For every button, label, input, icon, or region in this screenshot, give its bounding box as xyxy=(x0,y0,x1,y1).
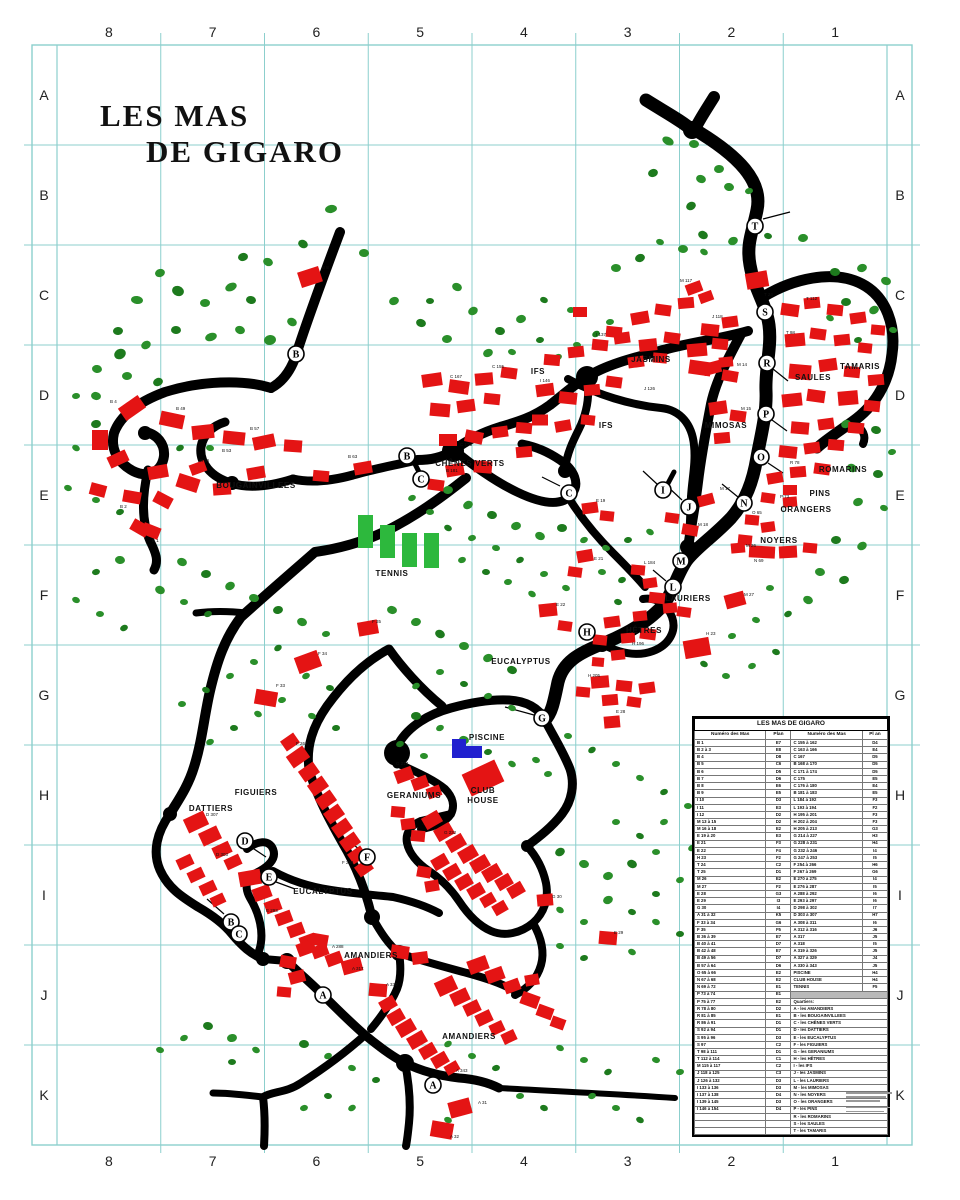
tree xyxy=(554,846,567,858)
building xyxy=(604,715,621,728)
tree xyxy=(251,1046,261,1055)
legend-cell xyxy=(766,1128,791,1135)
tree xyxy=(579,536,589,545)
road-letter: P xyxy=(763,410,769,421)
legend-cell: E2 xyxy=(766,970,791,977)
road xyxy=(143,470,156,570)
tree xyxy=(814,567,825,576)
grid-column-label: 6 xyxy=(312,24,320,40)
tree xyxy=(831,535,842,544)
tree xyxy=(410,617,421,627)
tree xyxy=(253,710,263,719)
road-junction xyxy=(521,840,533,852)
tree xyxy=(676,1068,685,1075)
legend-cell: E 270 à 275 xyxy=(791,876,862,883)
tree xyxy=(442,335,453,344)
grid-row-label: C xyxy=(895,287,905,303)
building-number-label: B 4 xyxy=(110,399,117,404)
building-number-label: B 8 xyxy=(322,265,329,270)
quarter-label: FIGUIERS xyxy=(235,788,278,797)
grid-column-label: 1 xyxy=(831,1153,839,1169)
building-number-label: E 19 xyxy=(596,498,606,503)
tree xyxy=(556,942,565,949)
tree xyxy=(179,1034,189,1043)
legend-cell: I6 xyxy=(862,890,887,897)
legend-cell xyxy=(695,1120,766,1127)
legend-cell: I4 xyxy=(766,905,791,912)
legend-cell: G 232 à 246 xyxy=(791,847,862,854)
legend-cell: J6 xyxy=(862,926,887,933)
legend-cell: C3 xyxy=(766,1070,791,1077)
building xyxy=(483,393,500,406)
building-number-label: F 33 xyxy=(276,683,286,688)
tree xyxy=(228,1059,236,1065)
tree xyxy=(536,336,545,343)
grid-column-label: 8 xyxy=(105,24,113,40)
legend-cell: A 308 à 311 xyxy=(791,919,862,926)
legend-cell: J 126 à 132 xyxy=(695,1077,766,1084)
road-letter: G xyxy=(538,714,546,725)
building xyxy=(537,893,554,906)
road-letter: B xyxy=(404,452,411,463)
building xyxy=(584,384,601,396)
tree xyxy=(434,628,447,640)
tree xyxy=(783,610,793,619)
building-number-label: A 317 xyxy=(352,966,364,971)
tree xyxy=(90,391,102,401)
building xyxy=(592,657,605,667)
legend-cell: E 29 xyxy=(695,898,766,905)
legend-cell: L - les LAURIERS xyxy=(791,1077,888,1084)
tree xyxy=(659,788,669,796)
tree xyxy=(676,931,684,937)
road xyxy=(405,1063,410,1146)
legend-cell: A 312 à 316 xyxy=(791,926,862,933)
tree xyxy=(484,748,493,755)
building xyxy=(833,334,850,347)
quarter-label: MIMOSAS xyxy=(705,421,747,430)
building xyxy=(638,338,657,352)
building xyxy=(254,689,278,708)
tree xyxy=(612,761,621,768)
building xyxy=(626,696,641,708)
building xyxy=(567,566,582,578)
legend-cell: B 36 à 39 xyxy=(695,934,766,941)
building xyxy=(638,681,655,694)
quarter-label: DATTIERS xyxy=(189,804,233,813)
marker-leader-line xyxy=(772,420,787,431)
grid-row-label: B xyxy=(39,187,48,203)
tree xyxy=(722,673,730,680)
building xyxy=(663,331,680,344)
legend-cell: H4 xyxy=(862,840,887,847)
road-letter: H xyxy=(583,628,591,639)
building xyxy=(92,430,108,450)
building xyxy=(745,514,760,525)
tree xyxy=(540,571,548,578)
building xyxy=(790,466,807,478)
tree xyxy=(544,771,552,778)
legend-cell: D3 xyxy=(766,1077,791,1084)
tree xyxy=(802,594,814,605)
building xyxy=(766,471,784,485)
tree xyxy=(347,1103,357,1112)
legend-cell: Numéro des Mas xyxy=(791,731,862,740)
marker-leader-line xyxy=(251,847,266,857)
tree xyxy=(888,448,897,455)
grid-row-label: B xyxy=(895,187,904,203)
tree xyxy=(579,954,588,962)
legend-cell: B 181 à 183 xyxy=(791,790,862,797)
tree xyxy=(534,530,546,541)
quarter-label: SAULES xyxy=(795,373,831,382)
legend-cell: B 42 à 48 xyxy=(695,948,766,955)
building xyxy=(863,400,880,413)
tree xyxy=(856,263,868,274)
building xyxy=(421,372,443,388)
legend-cell: E2 xyxy=(766,998,791,1005)
tree xyxy=(838,575,850,585)
legend-cell: H - les HÊTRES xyxy=(791,1056,888,1063)
quarter-label: IFS xyxy=(531,367,545,376)
legend-cell: A 317 xyxy=(791,934,862,941)
building xyxy=(633,610,648,621)
building xyxy=(439,434,457,446)
tree xyxy=(262,256,274,267)
tree xyxy=(467,534,476,542)
legend-cell: A 319 à 326 xyxy=(791,948,862,955)
building-number-label: A 343 xyxy=(456,1068,468,1073)
legend-cell: P 75 à 77 xyxy=(695,998,766,1005)
fine-print-line xyxy=(846,1096,886,1098)
road-junction xyxy=(138,426,152,440)
tree xyxy=(113,326,124,335)
building xyxy=(779,546,798,559)
legend-cell: R 81 à 85 xyxy=(695,1013,766,1020)
building-number-label: F 34 xyxy=(318,651,328,656)
building-number-label: A 330 xyxy=(386,982,398,987)
legend-cell: F4 xyxy=(766,847,791,854)
tree xyxy=(747,662,757,670)
legend-cell: B 8 xyxy=(695,783,766,790)
legend-cell: D5 xyxy=(862,754,887,761)
legend-cell: M 26 xyxy=(695,876,766,883)
legend-cell: E 21 xyxy=(695,840,766,847)
building-number-label: H 23 xyxy=(706,631,716,636)
quarter-label: AMANDIERS xyxy=(344,951,398,960)
building-number-label: G 213 xyxy=(396,761,409,766)
tree xyxy=(372,1077,381,1084)
building xyxy=(600,510,615,521)
legend-cell: I5 xyxy=(862,883,887,890)
tree xyxy=(407,494,417,503)
building-number-label: F 35 xyxy=(372,619,382,624)
building xyxy=(429,403,450,418)
building xyxy=(683,637,712,659)
building-number-label: N 69 xyxy=(754,558,764,563)
legend-cell: J 118 à 125 xyxy=(695,1070,766,1077)
tree xyxy=(612,1105,620,1112)
legend-cell: D5 xyxy=(766,768,791,775)
building xyxy=(252,433,276,450)
building-number-label: E 293 xyxy=(266,908,278,913)
legend-cell: D1 xyxy=(766,1049,791,1056)
tree xyxy=(652,849,660,855)
legend-cell: T - les TAMARIS xyxy=(791,1128,888,1135)
building xyxy=(246,466,266,481)
grid-column-label: 2 xyxy=(727,1153,735,1169)
road-junction xyxy=(256,952,270,966)
legend-cell: I5 xyxy=(862,855,887,862)
legend-cell: B 49 à 56 xyxy=(695,955,766,962)
building xyxy=(868,374,885,386)
legend-cell: D6 xyxy=(766,962,791,969)
legend-cell: G - les GERANIUMS xyxy=(791,1049,888,1056)
legend-cell: H4 xyxy=(862,977,887,984)
legend-cell: E4 xyxy=(862,747,887,754)
building xyxy=(152,490,174,509)
building xyxy=(567,346,584,359)
building xyxy=(368,983,387,998)
legend-cell xyxy=(695,1128,766,1135)
legend-cell: K5 xyxy=(766,912,791,919)
tree xyxy=(870,425,881,435)
road-letter: R xyxy=(763,359,771,370)
tree xyxy=(426,298,434,304)
legend-cell: E 28 xyxy=(695,890,766,897)
legend-cell: C1 xyxy=(766,1056,791,1063)
building xyxy=(175,854,194,871)
legend-cell: M 27 xyxy=(695,883,766,890)
tree xyxy=(557,524,567,532)
legend-cell: G6 xyxy=(862,869,887,876)
tree xyxy=(250,659,259,666)
building xyxy=(581,414,596,425)
building xyxy=(760,521,775,533)
legend-cell: H6 xyxy=(862,862,887,869)
quarter-label: AMANDIERS xyxy=(442,1032,496,1041)
tree xyxy=(624,536,633,543)
legend-cell: B 6 xyxy=(695,768,766,775)
legend-cell: D3 xyxy=(766,1034,791,1041)
building-number-label: C 175 xyxy=(460,442,473,447)
legend-cell: E2 xyxy=(766,977,791,984)
building xyxy=(411,830,426,842)
building xyxy=(663,602,678,613)
legend-cell: Plan xyxy=(766,731,791,740)
tree xyxy=(555,905,565,914)
tree xyxy=(154,268,166,278)
building-number-label: E 21 xyxy=(594,556,604,561)
tree xyxy=(388,296,400,307)
legend-cell: E6 xyxy=(766,783,791,790)
legend-cell: T 24 xyxy=(695,862,766,869)
legend-cell: F 254 à 266 xyxy=(791,862,862,869)
road-letter: C xyxy=(565,489,572,500)
legend-cell: S 95 à 96 xyxy=(695,1034,766,1041)
legend-cell: D3 xyxy=(766,1099,791,1106)
legend-cell: G 247 à 253 xyxy=(791,855,862,862)
grid-column-label: 2 xyxy=(727,24,735,40)
building xyxy=(664,512,679,524)
legend-cell: D5 xyxy=(862,761,887,768)
tree xyxy=(856,540,869,552)
building-number-label: B 53 xyxy=(222,448,232,453)
building xyxy=(424,879,440,892)
building xyxy=(648,592,665,605)
road-letter: B xyxy=(228,918,235,929)
tree xyxy=(322,631,331,638)
legend-cell: E8 xyxy=(766,747,791,754)
tree xyxy=(482,569,491,576)
legend-cell: D8 xyxy=(766,754,791,761)
legend-cell: F3 xyxy=(862,797,887,804)
legend-cell: N 69 à 72 xyxy=(695,984,766,991)
legend-cell: B 1 xyxy=(695,740,766,747)
tree xyxy=(527,589,537,598)
legend-cell: I7 xyxy=(862,905,887,912)
tree xyxy=(237,252,249,262)
legend-cell: T 112 à 114 xyxy=(695,1056,766,1063)
building xyxy=(581,501,598,514)
legend-cell: E 22 xyxy=(695,847,766,854)
road xyxy=(201,422,293,486)
grid-column-label: 4 xyxy=(520,24,528,40)
building xyxy=(122,490,142,505)
legend-cell: E5 xyxy=(766,790,791,797)
legend-cell: E5 xyxy=(862,790,887,797)
tree xyxy=(728,632,737,639)
legend-cell: A - les AMANDIERS xyxy=(791,1005,888,1012)
building xyxy=(806,389,825,403)
legend-cell: E2 xyxy=(766,876,791,883)
tree xyxy=(122,372,132,380)
quarter-label: JASMINS xyxy=(631,355,671,364)
tree xyxy=(225,672,234,680)
tree xyxy=(580,1057,588,1063)
tree xyxy=(587,745,597,754)
tree xyxy=(420,753,428,760)
legend-cell: F2 xyxy=(766,883,791,890)
legend-cell: D3 xyxy=(766,1085,791,1092)
legend-cell: D2 xyxy=(766,819,791,826)
building xyxy=(516,422,533,434)
tree xyxy=(659,818,668,826)
tree xyxy=(415,318,427,329)
legend-cell: C2 xyxy=(766,862,791,869)
road-junction xyxy=(396,1054,414,1072)
legend-cell: D 303 à 307 xyxy=(791,912,862,919)
building xyxy=(277,986,292,997)
map-title-line1: LES MAS xyxy=(100,98,344,134)
legend-cell: H3 xyxy=(862,833,887,840)
building xyxy=(573,307,587,317)
building xyxy=(817,417,834,430)
building xyxy=(731,542,746,553)
tree xyxy=(564,733,573,740)
legend-cell: TENNIS xyxy=(791,984,862,991)
quarter-label: GERANIUMS xyxy=(387,791,441,800)
tree xyxy=(697,229,709,240)
legend-cell: R 78 à 80 xyxy=(695,1005,766,1012)
road-junction xyxy=(683,121,701,139)
tree xyxy=(119,624,129,633)
building-number-label: A 32 xyxy=(450,1134,460,1139)
building xyxy=(538,603,557,618)
tree xyxy=(224,281,238,293)
quarter-label: EUCALYPTUS xyxy=(491,657,551,666)
road-letter: N xyxy=(740,499,748,510)
grid-row-label: F xyxy=(896,587,905,603)
building-number-label: B 1 xyxy=(152,538,159,543)
building-number-label: H 205 xyxy=(588,673,601,678)
grid-column-label: 8 xyxy=(105,1153,113,1169)
tree xyxy=(602,871,614,881)
grid-column-label: 1 xyxy=(831,24,839,40)
building-number-label: I 137 xyxy=(596,332,607,337)
legend-cell: I 133 à 136 xyxy=(695,1085,766,1092)
building xyxy=(159,411,185,430)
tree xyxy=(226,1033,237,1043)
road-letter: I xyxy=(661,486,665,497)
tree xyxy=(72,393,80,400)
building-number-label: B 181 xyxy=(446,468,458,473)
building-number-label: B 2 xyxy=(120,504,127,509)
legend-cell: L 193 à 194 xyxy=(791,804,862,811)
legend-cell: F3 xyxy=(766,840,791,847)
tree xyxy=(96,611,104,617)
legend-cell: E1 xyxy=(766,991,791,998)
tree xyxy=(617,576,626,584)
grid-row-label: A xyxy=(39,87,49,103)
legend-cell: E1 xyxy=(766,984,791,991)
legend-cell: G 228 à 231 xyxy=(791,840,862,847)
tree xyxy=(699,660,709,669)
tree xyxy=(561,584,571,592)
legend-cell: D 298 à 302 xyxy=(791,905,862,912)
tree xyxy=(598,569,606,576)
legend-cell: D7 xyxy=(766,955,791,962)
building xyxy=(791,421,810,435)
quarter-label: CHÊNES VERTS xyxy=(435,459,504,468)
building xyxy=(605,375,622,388)
tree xyxy=(647,168,659,179)
building xyxy=(535,1004,554,1021)
legend-cell: D1 xyxy=(766,1027,791,1034)
building xyxy=(849,311,866,324)
tree xyxy=(91,568,100,576)
legend-cell: M 16 à 18 xyxy=(695,826,766,833)
building xyxy=(837,390,858,406)
building xyxy=(411,951,429,965)
legend-cell: I 137 à 138 xyxy=(695,1092,766,1099)
building-number-label: J 126 xyxy=(644,386,656,391)
road xyxy=(271,232,340,388)
building-number-label: F 267 xyxy=(296,741,308,746)
grid-row-label: J xyxy=(41,987,48,1003)
road-letter: O xyxy=(757,453,765,464)
legend-cell: A 318 xyxy=(791,941,862,948)
legend-cell: R 86 à 91 xyxy=(695,1020,766,1027)
legend-cell: I 12 xyxy=(695,811,766,818)
building xyxy=(778,445,797,459)
legend-cell: O 65 à 66 xyxy=(695,970,766,977)
quarter-label: PINS xyxy=(809,489,830,498)
building xyxy=(500,1029,517,1045)
legend-cell: B 40 à 41 xyxy=(695,941,766,948)
quarter-label: IFS xyxy=(599,421,613,430)
marker-leader-line xyxy=(542,477,560,486)
